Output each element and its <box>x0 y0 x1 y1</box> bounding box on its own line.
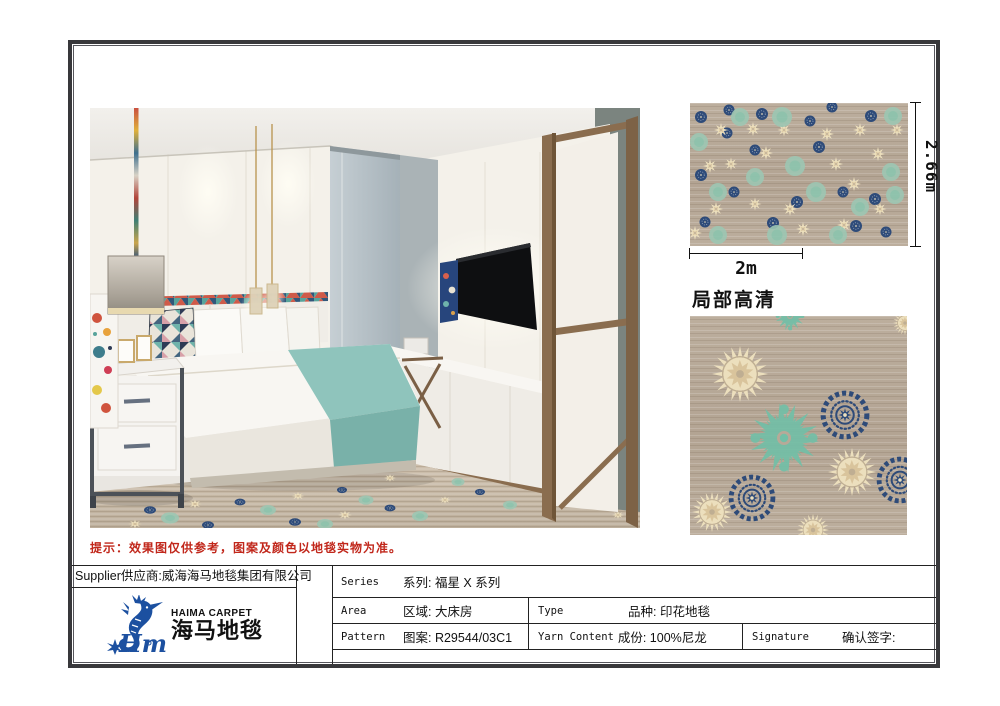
seahorse-logo-icon: Hm <box>105 595 167 655</box>
series-label-en: Series <box>341 576 399 588</box>
carpet-motif <box>144 506 156 513</box>
closeup-title: 局部高清 <box>692 285 776 312</box>
carpet-motif <box>797 514 829 535</box>
carpet-motif <box>882 163 900 181</box>
swatch-width-dimension-label: 2m <box>694 258 798 279</box>
carpet-motif <box>746 122 760 136</box>
carpet-motif <box>879 459 907 501</box>
carpet-motif <box>412 511 428 521</box>
carpet-motif <box>813 141 825 153</box>
carpet-motif <box>292 492 305 500</box>
carpet-motif <box>731 477 773 519</box>
carpet-motif <box>772 107 792 127</box>
carpet-motif <box>756 108 768 120</box>
carpet-motif <box>829 157 843 171</box>
carpet-swatch <box>690 103 908 246</box>
carpet-motif <box>289 518 301 525</box>
brand-name-en: HAIMA CARPET <box>171 609 263 619</box>
carpet-motif <box>759 146 773 160</box>
carpet-motif <box>690 133 708 151</box>
supplier-line: Supplier供应商:威海海马地毯集团有限公司 <box>72 566 296 588</box>
carpet-motif <box>796 222 810 236</box>
cell-type: Type 品种: 印花地毯 <box>528 598 936 623</box>
brand-name-cn: 海马地毯 <box>171 620 263 642</box>
carpet-motif <box>893 316 907 335</box>
carpet-motif <box>235 499 246 506</box>
carpet-motif <box>452 478 465 486</box>
carpet-motif <box>847 177 861 191</box>
carpet-motif <box>712 346 768 402</box>
pattern-label-en: Pattern <box>341 631 399 643</box>
carpet-motif <box>695 111 707 123</box>
carpet-motif <box>729 187 740 198</box>
carpet-motif <box>385 505 396 512</box>
beaded-lamp-cord <box>134 108 139 258</box>
room-render <box>90 108 640 528</box>
carpet-motif <box>731 108 749 126</box>
carpet-motif <box>260 505 276 515</box>
logo-script: Hm <box>118 629 167 655</box>
carpet-motif <box>838 187 849 198</box>
logo-text: HAIMA CARPET 海马地毯 <box>171 609 263 642</box>
carpet-motif <box>775 316 805 331</box>
area-value: 区域: 大床房 <box>403 601 472 620</box>
carpet-motif <box>785 156 805 176</box>
wall-artwork-small <box>440 260 458 323</box>
carpet-motif <box>746 168 764 186</box>
carpet-motif <box>700 217 711 228</box>
carpet-motif <box>767 225 787 245</box>
yarn-value: 成份: 100%尼龙 <box>618 627 707 646</box>
carpet-motif <box>886 186 904 204</box>
carpet-motif <box>161 512 179 523</box>
swatch-height-dimension-label: 2.66m <box>922 140 941 193</box>
table-spacer-column <box>296 566 333 664</box>
carpet-motif <box>806 182 826 202</box>
carpet-motif <box>475 489 485 495</box>
haima-logo: Hm HAIMA CARPET 海马地毯 <box>72 595 296 655</box>
spec-table: Supplier供应商:威海海马地毯集团有限公司 <box>72 565 936 664</box>
disclaimer-note: 提示：效果图仅供参考，图案及颜色以地毯实物为准。 <box>90 539 402 556</box>
carpet-motif <box>874 203 887 216</box>
carpet-motif <box>865 110 877 122</box>
carpet-motif <box>359 495 374 504</box>
swatch-width-dimension-line <box>690 253 802 254</box>
supplier-value: 供应商:威海海马地毯集团有限公司 <box>121 569 312 583</box>
row-pattern-yarn-signature: Pattern 图案: R29544/03C1 Yarn Content 成份:… <box>332 624 936 650</box>
carpet-motif <box>871 147 885 161</box>
row-series: Series 系列: 福星 X 系列 <box>332 566 936 598</box>
carpet-motif <box>853 123 867 137</box>
carpet-motif <box>869 193 881 205</box>
carpet-motif <box>749 403 819 472</box>
cell-yarn: Yarn Content 成份: 100%尼龙 <box>528 624 742 649</box>
carpet-motif <box>709 183 727 201</box>
carpet-motif <box>725 158 738 171</box>
carpet-motif <box>827 103 838 113</box>
carpet-motif <box>692 492 732 532</box>
type-value: 品种: 印花地毯 <box>628 601 710 620</box>
carpet-motif <box>829 226 847 244</box>
cell-signature: Signature 确认签字: <box>742 624 936 649</box>
carpet-motif <box>503 501 517 510</box>
signature-label-en: Signature <box>752 631 838 643</box>
carpet-motif <box>881 227 892 238</box>
carpet-motif <box>891 124 904 137</box>
downlight-glow <box>260 140 316 228</box>
yarn-label-en: Yarn Content <box>538 631 614 643</box>
swatch-height-dimension-line <box>915 103 916 246</box>
photo-frames <box>118 336 151 362</box>
carpet-motif <box>805 116 816 127</box>
pattern-value: 图案: R29544/03C1 <box>403 627 512 646</box>
carpet-motif <box>884 107 902 125</box>
carpet-motif <box>709 202 723 216</box>
signature-value: 确认签字: <box>842 627 895 646</box>
downlight-glow <box>178 144 238 240</box>
carpet-motif <box>690 226 702 240</box>
row-area-type: Area 区域: 大床房 Type 品种: 印花地毯 <box>332 598 936 624</box>
carpet-motif <box>851 198 869 216</box>
spec-rows: Series 系列: 福星 X 系列 Area 区域: 大床房 Type 品种:… <box>332 566 936 650</box>
cell-area: Area 区域: 大床房 <box>332 598 528 623</box>
carpet-motif <box>188 500 202 509</box>
carpet-motif <box>823 393 867 437</box>
supplier-label: Supplier <box>75 569 121 583</box>
room-render-illustration <box>90 108 640 528</box>
carpet-motif <box>828 448 876 496</box>
cell-series: Series 系列: 福星 X 系列 <box>332 566 936 597</box>
series-value: 系列: 福星 X 系列 <box>403 572 500 591</box>
carpet-closeup <box>690 316 907 535</box>
supplier-cell: Supplier供应商:威海海马地毯集团有限公司 <box>72 566 297 664</box>
carpet-motif <box>750 145 761 156</box>
sheet-border-frame: 2.66m 2m 局部高清 提示：效果图仅供参考，图案及颜色以地毯实物为准。 S… <box>68 40 940 668</box>
area-label-en: Area <box>341 605 399 617</box>
carpet-motif <box>709 226 727 244</box>
type-label-en: Type <box>538 605 624 617</box>
carpet-spec-sheet: 2.66m 2m 局部高清 提示：效果图仅供参考，图案及颜色以地毯实物为准。 S… <box>0 0 1000 706</box>
carpet-motif <box>749 198 762 211</box>
cell-pattern: Pattern 图案: R29544/03C1 <box>332 624 528 649</box>
carpet-motif <box>337 487 347 493</box>
carpet-motif <box>820 127 834 141</box>
carpet-motif <box>850 220 862 232</box>
